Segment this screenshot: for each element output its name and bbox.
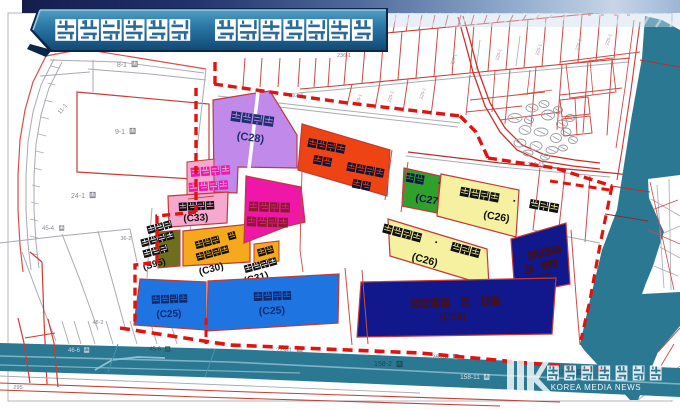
svg-text:(C25): (C25) <box>156 309 181 321</box>
svg-text:KOREA MEDIA NEWS: KOREA MEDIA NEWS <box>551 383 642 392</box>
svg-text:236-1: 236-1 <box>337 53 351 59</box>
svg-text:(C29): (C29) <box>440 311 467 324</box>
svg-text:295: 295 <box>13 385 22 391</box>
svg-text:158-2: 158-2 <box>374 361 392 368</box>
svg-text:45-6: 45-6 <box>149 347 162 353</box>
svg-text:24-1: 24-1 <box>71 193 85 200</box>
svg-text:158-11: 158-11 <box>460 374 480 381</box>
svg-text:9-1: 9-1 <box>115 129 125 136</box>
svg-text:36-2: 36-2 <box>120 236 131 242</box>
svg-text:46-6: 46-6 <box>68 348 81 354</box>
svg-text:(C25): (C25) <box>259 305 286 318</box>
svg-text:8-1: 8-1 <box>117 62 127 69</box>
svg-text:(C33): (C33) <box>183 212 209 224</box>
svg-text:48-2: 48-2 <box>92 320 103 326</box>
svg-text:45-4: 45-4 <box>42 226 55 232</box>
